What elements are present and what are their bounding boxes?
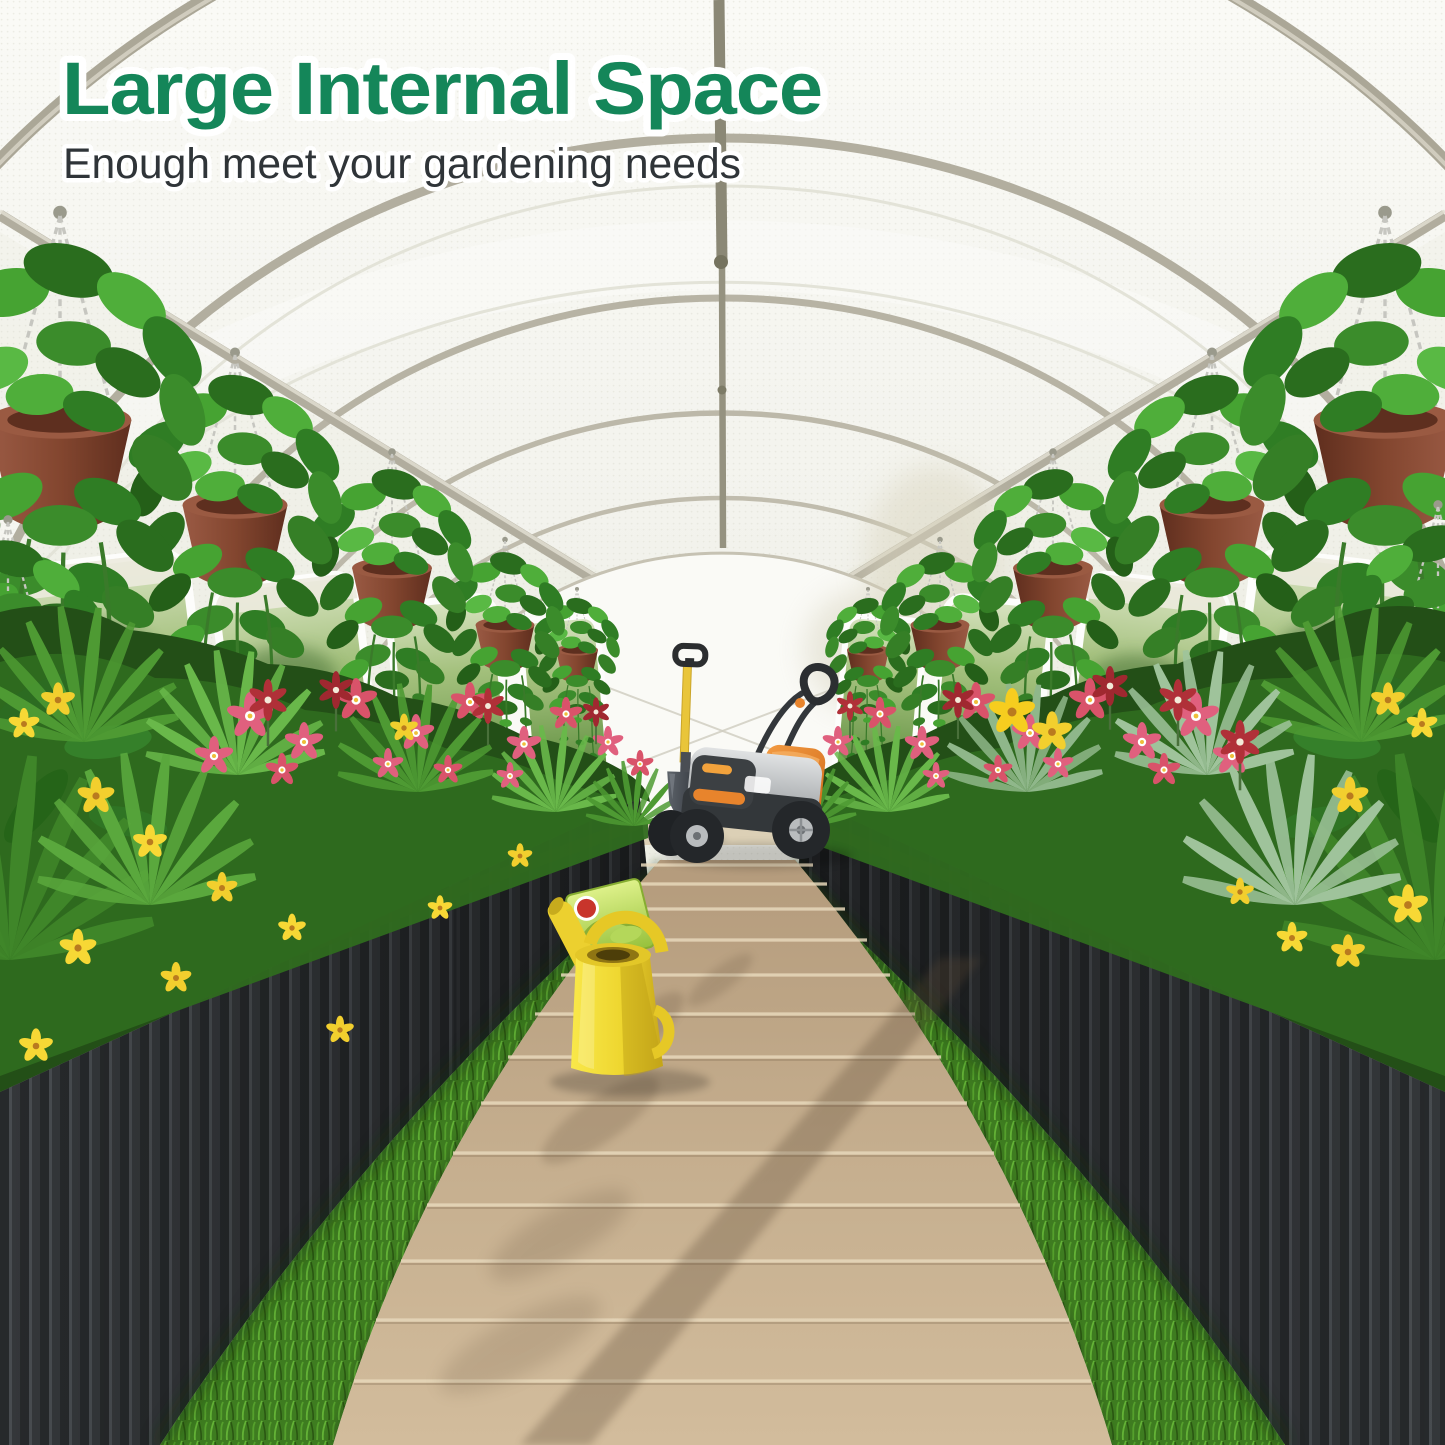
subtitle-text: Enough meet your gardening needs: [63, 140, 741, 188]
title-text: Large Internal Space: [62, 47, 822, 130]
text-overlay: Large Internal Space Enough meet your ga…: [62, 47, 822, 188]
scene-image: Large Internal Space Enough meet your ga…: [0, 0, 1445, 1445]
greenhouse-product-photo: Large Internal Space Enough meet your ga…: [0, 0, 1445, 1445]
